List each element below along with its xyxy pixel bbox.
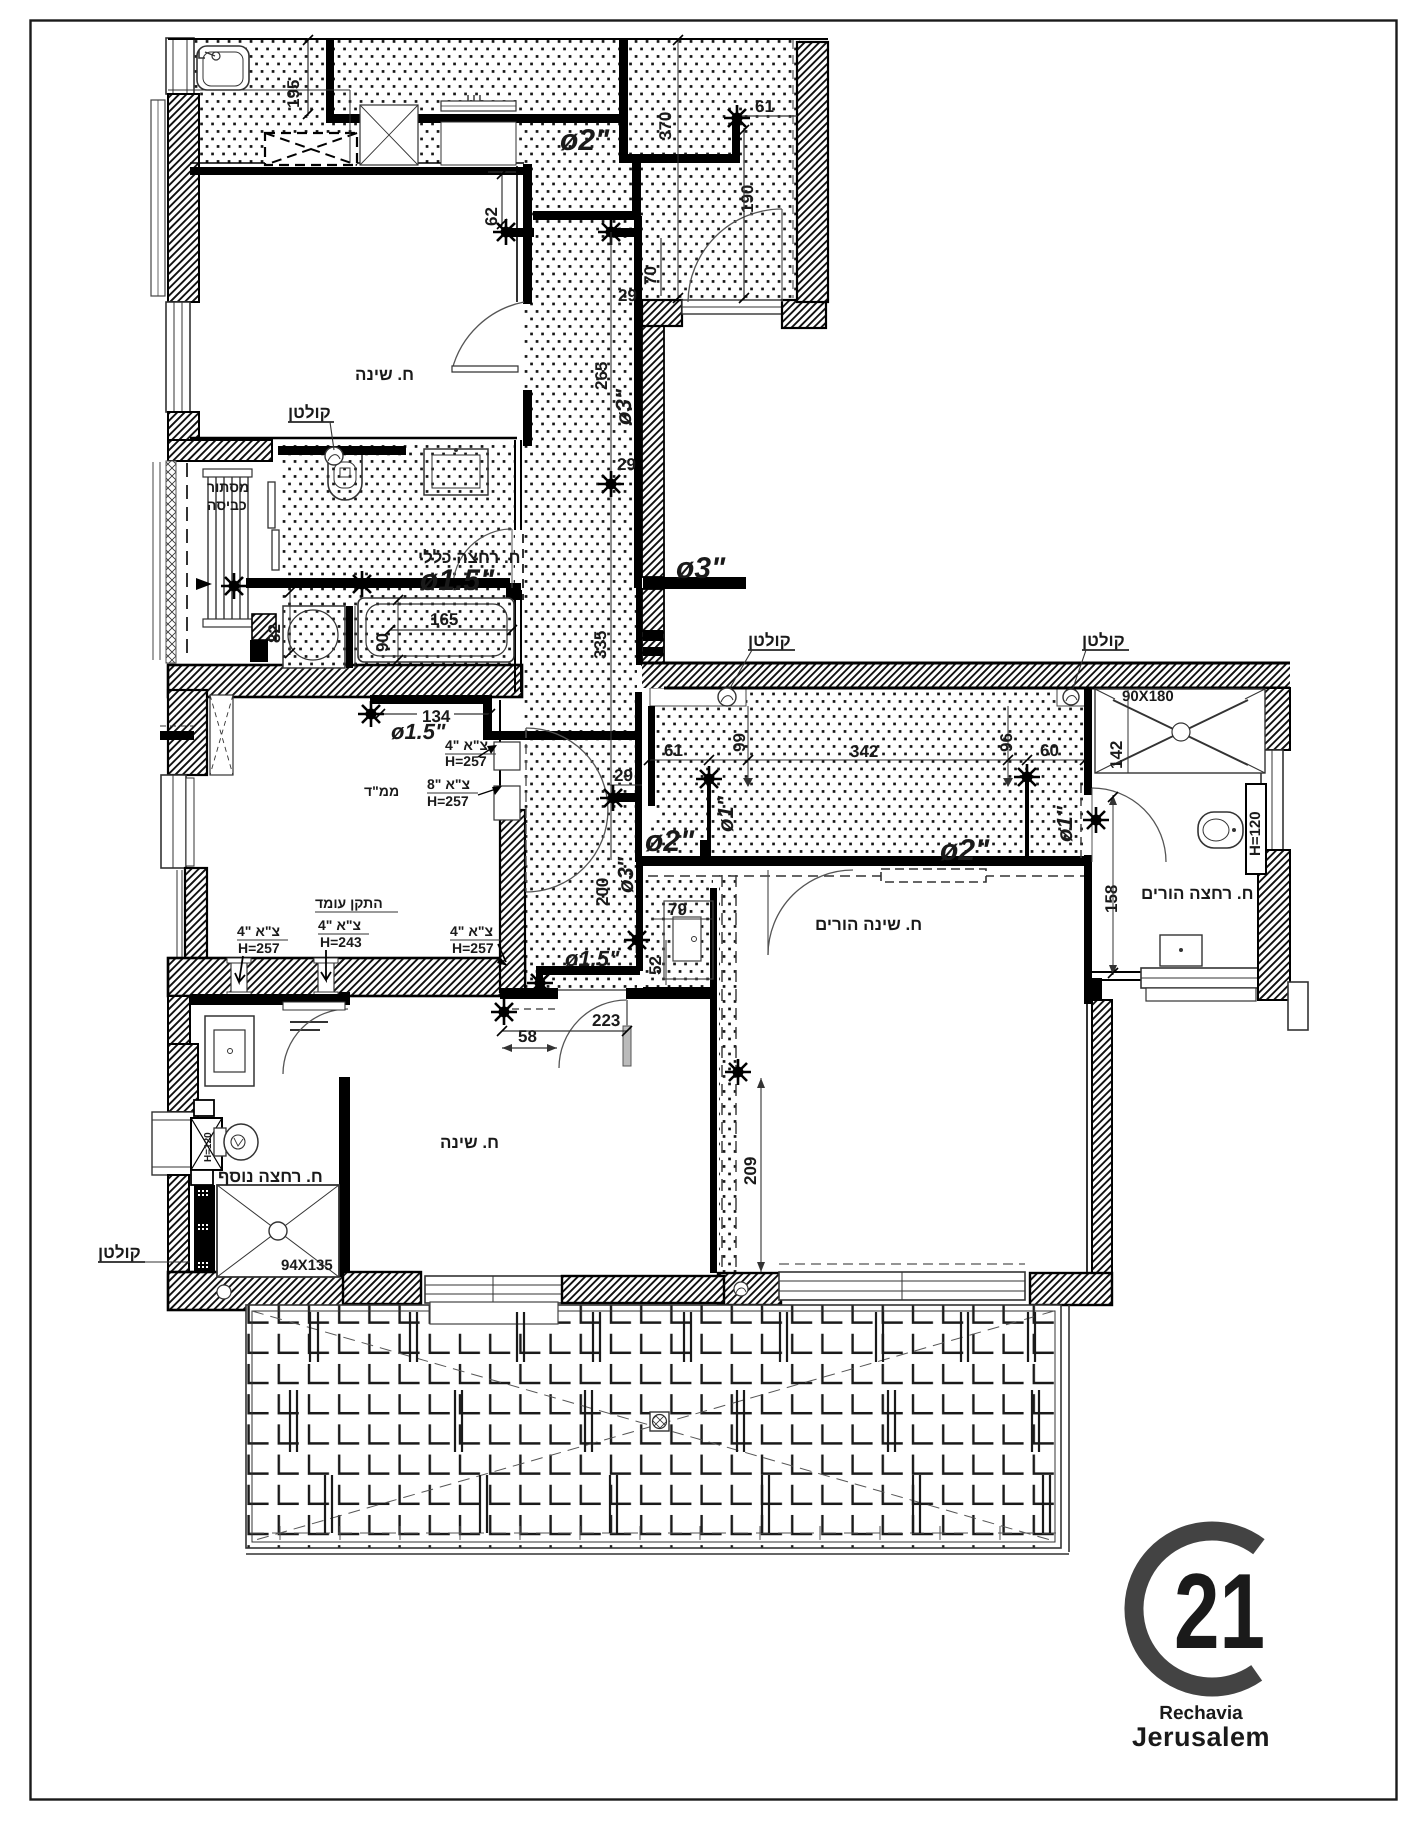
svg-text:קולטן: קולטן [748, 631, 791, 650]
svg-text:ø3": ø3" [613, 856, 638, 893]
svg-text:ח. שינה הורים: ח. שינה הורים [815, 915, 922, 934]
svg-text:61: 61 [755, 97, 774, 116]
svg-text:ח. רחצה כללי: ח. רחצה כללי [418, 548, 521, 567]
svg-text:52: 52 [646, 956, 665, 975]
svg-text:ø1.5": ø1.5" [565, 946, 620, 971]
svg-text:ø2": ø2" [645, 825, 695, 858]
svg-text:94X135: 94X135 [281, 1257, 333, 1274]
svg-text:ח. רחצה הורים: ח. רחצה הורים [1141, 884, 1254, 903]
svg-text:ø1": ø1" [713, 795, 738, 832]
svg-text:29: 29 [617, 455, 636, 474]
svg-text:ח. רחצה נוסף: ח. רחצה נוסף [218, 1167, 323, 1186]
svg-text:4" צ"א: 4" צ"א [450, 923, 493, 939]
svg-text:כביסה: כביסה [207, 497, 247, 513]
svg-text:70: 70 [641, 266, 660, 285]
svg-text:ø3": ø3" [676, 552, 726, 585]
svg-text:התקן עומד: התקן עומד [315, 895, 383, 911]
svg-text:ח. שינה: ח. שינה [355, 365, 414, 384]
svg-text:96: 96 [997, 733, 1016, 752]
svg-text:4" צ"א: 4" צ"א [445, 737, 488, 753]
svg-text:ח. שינה: ח. שינה [440, 1133, 499, 1152]
svg-text:4" צ"א: 4" צ"א [237, 923, 280, 939]
svg-text:61: 61 [664, 741, 683, 760]
svg-text:209: 209 [741, 1157, 760, 1185]
svg-text:ממ"ד: ממ"ד [364, 783, 399, 799]
svg-text:ø1.5": ø1.5" [391, 719, 446, 744]
svg-text:מסתור: מסתור [207, 479, 249, 495]
svg-text:265: 265 [592, 362, 611, 390]
svg-text:H=257: H=257 [452, 940, 494, 956]
svg-text:58: 58 [518, 1027, 537, 1046]
svg-text:223: 223 [592, 1011, 620, 1030]
svg-text:ø1": ø1" [1052, 805, 1077, 842]
svg-text:90: 90 [373, 633, 392, 652]
svg-text:158: 158 [1102, 885, 1121, 913]
svg-text:קולטן: קולטן [288, 403, 331, 422]
svg-text:370: 370 [656, 112, 675, 140]
svg-text:142: 142 [1107, 741, 1126, 769]
svg-text:ø2": ø2" [940, 834, 990, 867]
svg-text:335: 335 [591, 631, 610, 659]
svg-text:קולטן: קולטן [1082, 631, 1125, 650]
svg-text:H=243: H=243 [320, 934, 362, 950]
svg-text:29: 29 [618, 286, 637, 305]
svg-text:99: 99 [730, 733, 749, 752]
svg-text:H=257: H=257 [238, 940, 280, 956]
svg-text:ø3": ø3" [611, 388, 636, 425]
svg-text:Jerusalem: Jerusalem [1132, 1722, 1270, 1752]
svg-text:82: 82 [265, 624, 284, 643]
svg-text:60: 60 [1040, 741, 1059, 760]
svg-text:ø2": ø2" [560, 124, 610, 157]
svg-text:29: 29 [614, 766, 633, 785]
svg-text:200: 200 [593, 878, 612, 906]
svg-text:ø1.5": ø1.5" [420, 564, 495, 597]
svg-text:4" צ"א: 4" צ"א [318, 917, 361, 933]
svg-text:195: 195 [284, 80, 303, 108]
svg-text:8" צ"א: 8" צ"א [427, 776, 470, 792]
svg-text:165: 165 [430, 610, 458, 629]
svg-text:H=120: H=120 [1247, 811, 1264, 856]
svg-text:90X180: 90X180 [1122, 688, 1174, 705]
svg-text:79: 79 [668, 900, 687, 919]
svg-text:Rechavia: Rechavia [1159, 1703, 1243, 1724]
svg-text:H=257: H=257 [427, 793, 469, 809]
svg-text:קולטן: קולטן [98, 1243, 141, 1262]
svg-text:190: 190 [738, 185, 757, 213]
svg-text:H=120: H=120 [203, 1132, 214, 1162]
svg-text:342: 342 [850, 742, 878, 761]
svg-text:21: 21 [1174, 1551, 1265, 1671]
